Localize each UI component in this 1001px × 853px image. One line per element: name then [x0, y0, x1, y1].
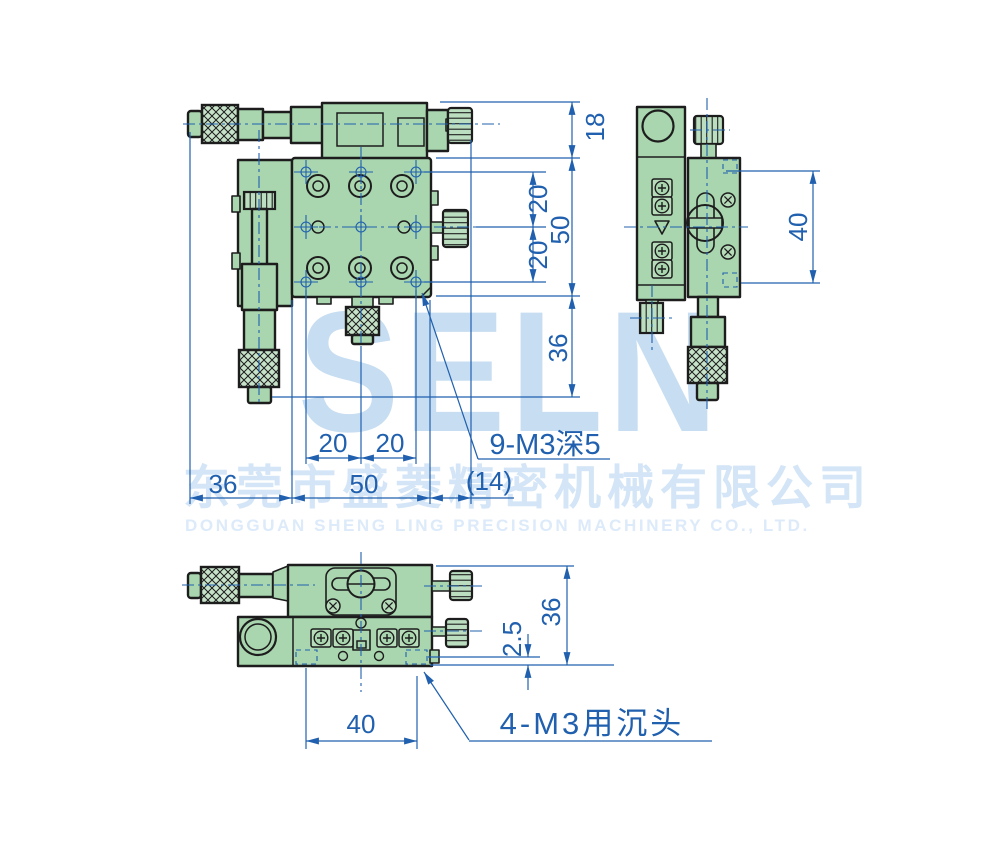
dim-label-40-side: 40: [783, 213, 813, 242]
dim-label-20-bottom-right: 20: [376, 428, 405, 458]
dim-label-20-right-top: 20: [523, 185, 553, 214]
dim-label-14: (14): [466, 466, 512, 496]
dim-label-18: 18: [580, 113, 610, 142]
side-top-knob: [694, 116, 723, 158]
drawing-canvas: SELN 东莞市盛菱精密机械有限公司 DONGGUAN SHENG LING P…: [0, 0, 1001, 853]
plan-x-carriage: [322, 103, 448, 160]
side-view: 40: [624, 98, 820, 410]
side-left-body: [637, 107, 685, 333]
front-lower-knob: [432, 619, 468, 647]
dim-label-40-front: 40: [347, 709, 376, 739]
front-callout-4m3: 4-M3用沉头: [424, 672, 712, 741]
dim-label-20-bottom-left: 20: [319, 428, 348, 458]
plan-side-knob: [431, 210, 468, 247]
plan-callout-9m3: 9-M3深5: [422, 293, 610, 461]
dim-label-2p5-front: 2.5: [497, 621, 527, 657]
dim-label-36-right: 36: [543, 334, 573, 363]
dim-label-36-front: 36: [536, 598, 566, 627]
front-view: 36 2.5 40 4-M3用沉头: [182, 552, 712, 749]
callout-label-9m3: 9-M3深5: [489, 429, 600, 461]
dim-label-36-bottom: 36: [209, 469, 238, 499]
drawing-svg: 18 20 20 50 36 20 20 36 50 (14) 9-M3深5: [0, 0, 1001, 853]
dim-label-50-right: 50: [545, 216, 575, 245]
plan-x-lock-knob: [446, 108, 472, 143]
front-top-slide: [288, 565, 432, 617]
dim-label-50-bottom: 50: [350, 469, 379, 499]
plan-bottom-knob: [346, 297, 379, 344]
callout-label-4m3: 4-M3用沉头: [500, 706, 685, 741]
plan-view: 18 20 20 50 36 20 20 36 50 (14) 9-M3深5: [183, 102, 610, 504]
